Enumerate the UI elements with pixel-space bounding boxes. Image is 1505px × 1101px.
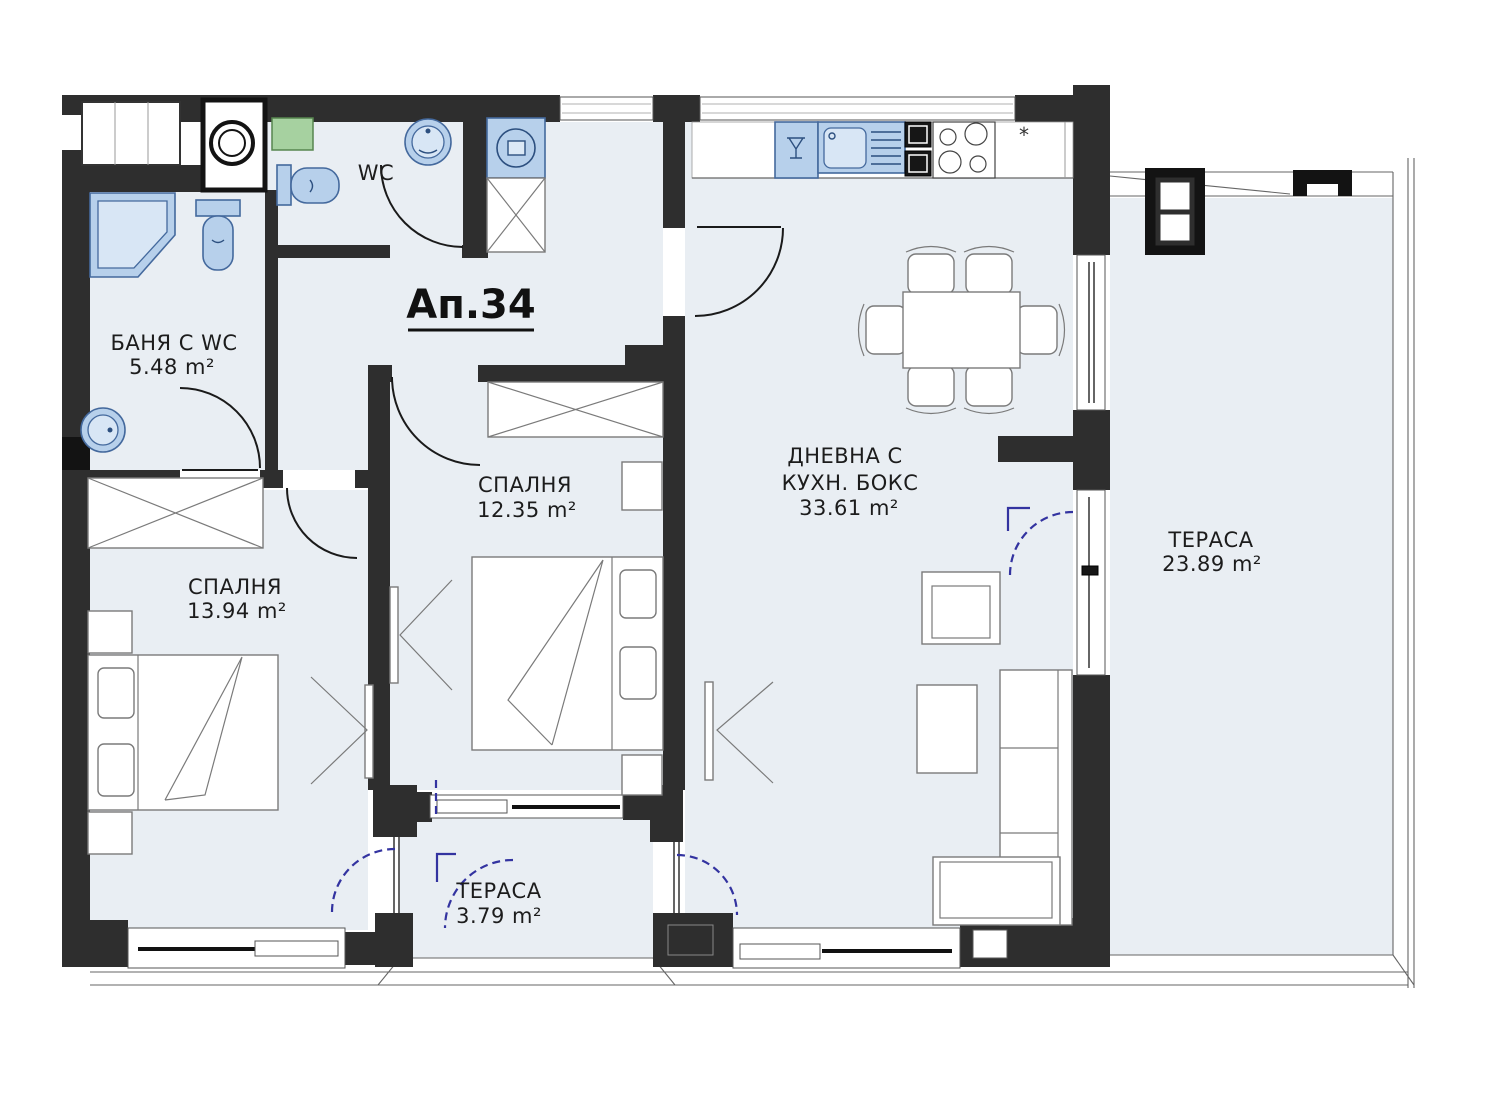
hall-floor-2 bbox=[545, 122, 663, 252]
room-label-wc: WC bbox=[358, 161, 394, 185]
washing-machine-icon bbox=[211, 122, 253, 164]
nightstand bbox=[88, 611, 132, 653]
wc-toilet-tank-icon bbox=[277, 165, 291, 205]
floor-plan: * bbox=[0, 0, 1505, 1101]
living-side-window bbox=[1077, 255, 1105, 410]
room-area-terrace-large: 23.89 m² bbox=[1162, 552, 1262, 576]
armchair bbox=[922, 572, 1000, 644]
shelf-icon bbox=[272, 118, 313, 150]
room-area-bathroom: 5.48 m² bbox=[129, 355, 215, 379]
stair-shaft bbox=[82, 102, 180, 165]
room-label-bedroom-left: СПАЛНЯ bbox=[188, 575, 282, 599]
tv-living bbox=[705, 682, 713, 780]
room-label-terrace-large: ТЕРАСА bbox=[1167, 528, 1253, 552]
wc-toilet-bowl-icon bbox=[291, 168, 339, 203]
room-area-bedroom-middle: 12.35 m² bbox=[477, 498, 577, 522]
room-label-terrace-small: ТЕРАСА bbox=[455, 879, 541, 903]
room-label-bathroom: БАНЯ С WC bbox=[110, 331, 237, 355]
hall-top-window bbox=[560, 97, 653, 120]
dining-table bbox=[903, 292, 1020, 368]
nightstand bbox=[622, 755, 662, 795]
fridge-symbol: * bbox=[1019, 123, 1029, 147]
room-label-living-1: ДНЕВНА С bbox=[787, 444, 902, 468]
terrace-glass-door bbox=[1077, 490, 1105, 675]
room-label-bedroom-middle: СПАЛНЯ bbox=[478, 473, 572, 497]
kitchen-top-window bbox=[700, 97, 1015, 120]
nightstand bbox=[622, 462, 662, 510]
tv-bedroom-middle bbox=[390, 587, 398, 683]
room-area-bedroom-left: 13.94 m² bbox=[187, 599, 287, 623]
nightstand bbox=[88, 812, 132, 854]
floor-plan-page: * bbox=[0, 0, 1505, 1101]
coffee-table bbox=[917, 685, 977, 773]
room-area-living: 33.61 m² bbox=[799, 496, 899, 520]
apartment-title: Ап.34 bbox=[406, 282, 535, 328]
room-area-terrace-small: 3.79 m² bbox=[456, 904, 542, 928]
terrace-large-floor bbox=[1110, 198, 1393, 955]
kitchen: * bbox=[692, 122, 1073, 178]
room-label-living-2: КУХН. БОКС bbox=[782, 471, 919, 495]
toilet-tank-icon bbox=[196, 200, 240, 216]
